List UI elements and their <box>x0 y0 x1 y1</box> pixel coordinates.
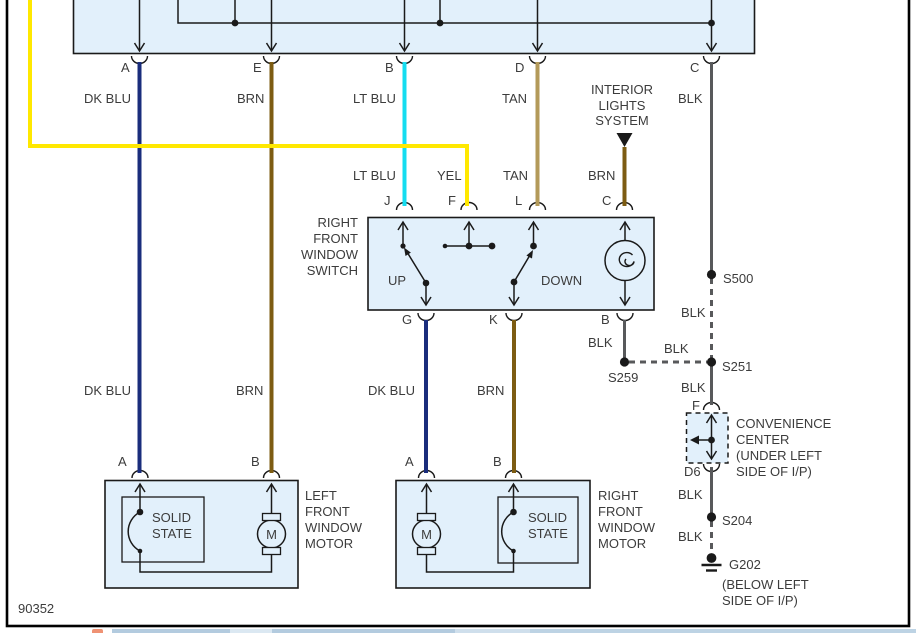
top-pin-d: D <box>515 61 524 74</box>
switch-down-label: DOWN <box>541 274 582 287</box>
wire-label-lt-blu-2: LT BLU <box>353 169 396 182</box>
wire-label-tan-2: TAN <box>503 169 528 182</box>
right-motor-label: RIGHT FRONT WINDOW MOTOR <box>598 488 655 552</box>
wire-label-dk-blu-1: DK BLU <box>84 92 131 105</box>
window-switch-box <box>368 218 654 311</box>
window-switch-line4: SWITCH <box>268 263 358 279</box>
ground-location-line2: SIDE OF I/P) <box>722 593 809 609</box>
wire-label-blk-switch-b: BLK <box>588 336 613 349</box>
left-motor-line4: MOTOR <box>305 536 362 552</box>
switch-pin-f: F <box>448 194 456 207</box>
right-motor-line4: MOTOR <box>598 536 655 552</box>
switch-pin-g: G <box>402 313 412 326</box>
wire-label-blk-horizontal: BLK <box>664 342 689 355</box>
splice-s500-label: S500 <box>723 272 753 285</box>
left-motor-m-label: M <box>265 528 278 541</box>
wire-label-brn-2: BRN <box>588 169 615 182</box>
switch-pin-c: C <box>602 194 611 207</box>
taskbar-segment <box>530 629 916 633</box>
top-pin-c: C <box>690 61 699 74</box>
wire-label-brn-4: BRN <box>477 384 504 397</box>
interior-lights-triangle-icon <box>617 133 633 147</box>
wiring-diagram-canvas <box>0 0 916 633</box>
right-motor-m-label: M <box>420 528 433 541</box>
convenience-line2: CENTER <box>736 432 831 448</box>
right-solid-state-label: SOLID STATE <box>528 510 568 542</box>
ground-location-label: (BELOW LEFT SIDE OF I/P) <box>722 577 809 609</box>
left-solid-state-label: SOLID STATE <box>152 510 192 542</box>
left-motor-line3: WINDOW <box>305 520 362 536</box>
convenience-line3: (UNDER LEFT <box>736 448 831 464</box>
top-connector-box <box>74 0 755 54</box>
right-solid-state-line1: SOLID <box>528 510 568 526</box>
wire-label-lt-blu-1: LT BLU <box>353 92 396 105</box>
wire-label-blk-d6-s204: BLK <box>678 488 703 501</box>
figure-number: 90352 <box>18 602 54 615</box>
wire-label-blk-s500-s251: BLK <box>681 306 706 319</box>
interior-lights-line2: LIGHTS <box>575 98 669 114</box>
taskbar-app-icon[interactable] <box>92 629 103 633</box>
wire-label-blk-s251-f: BLK <box>681 381 706 394</box>
taskbar-segment <box>112 629 230 633</box>
top-pin-b: B <box>385 61 394 74</box>
wire-label-dk-blu-2: DK BLU <box>84 384 131 397</box>
right-motor-line3: WINDOW <box>598 520 655 536</box>
top-box-connector-icons <box>132 56 720 64</box>
splice-s204-dot <box>707 512 716 521</box>
switch-pin-l: L <box>515 194 522 207</box>
right-motor-pin-a: A <box>405 455 414 468</box>
left-motor-top-cap <box>263 514 281 521</box>
top-pin-a: A <box>121 61 130 74</box>
right-motor-line1: RIGHT <box>598 488 655 504</box>
taskbar-strip <box>0 629 916 633</box>
convenience-line1: CONVENIENCE <box>736 416 831 432</box>
convenience-center-label: CONVENIENCE CENTER (UNDER LEFT SIDE OF I… <box>736 416 831 480</box>
splice-s500-dot <box>707 270 716 279</box>
wire-label-dk-blu-3: DK BLU <box>368 384 415 397</box>
wire-label-tan-1: TAN <box>502 92 527 105</box>
right-solid-state-line2: STATE <box>528 526 568 542</box>
left-motor-pin-a: A <box>118 455 127 468</box>
splice-s204-label: S204 <box>722 514 752 527</box>
window-switch-line2: FRONT <box>268 231 358 247</box>
right-motor-pin-b: B <box>493 455 502 468</box>
left-motor-line2: FRONT <box>305 504 362 520</box>
ground-location-line1: (BELOW LEFT <box>722 577 809 593</box>
left-solid-state-line2: STATE <box>152 526 192 542</box>
interior-lights-line3: SYSTEM <box>575 113 669 129</box>
splice-s251-label: S251 <box>722 360 752 373</box>
splice-s259-dot <box>620 357 629 366</box>
wire-label-blk-1: BLK <box>678 92 703 105</box>
interior-lights-system-label: INTERIOR LIGHTS SYSTEM <box>575 82 669 129</box>
splice-s251-dot <box>707 357 716 366</box>
taskbar-segment <box>272 629 455 633</box>
right-motor-top-cap <box>418 514 436 521</box>
left-motor-line1: LEFT <box>305 488 362 504</box>
window-switch-line1: RIGHT <box>268 215 358 231</box>
left-motor-pin-b: B <box>251 455 260 468</box>
wire-label-brn-1: BRN <box>237 92 264 105</box>
wire-label-brn-3: BRN <box>236 384 263 397</box>
convenience-line4: SIDE OF I/P) <box>736 464 831 480</box>
switch-pin-b: B <box>601 313 610 326</box>
ground-g202-label: G202 <box>729 558 761 571</box>
switch-pin-k: K <box>489 313 498 326</box>
taskbar-segment <box>455 629 530 633</box>
wire-label-blk-s204-gnd: BLK <box>678 530 703 543</box>
motor-connector-icons <box>132 471 522 478</box>
wire-label-yel: YEL <box>437 169 462 182</box>
convenience-pin-f: F <box>692 399 700 412</box>
left-solid-state-line1: SOLID <box>152 510 192 526</box>
right-motor-line2: FRONT <box>598 504 655 520</box>
interior-lights-line1: INTERIOR <box>575 82 669 98</box>
convenience-pin-d6: D6 <box>684 465 701 478</box>
left-motor-label: LEFT FRONT WINDOW MOTOR <box>305 488 362 552</box>
splice-s259-label: S259 <box>608 371 638 384</box>
ground-symbol-icon <box>702 554 722 571</box>
left-motor-bottom-cap <box>263 548 281 555</box>
top-pin-e: E <box>253 61 262 74</box>
switch-pin-j: J <box>384 194 391 207</box>
window-switch-line3: WINDOW <box>268 247 358 263</box>
window-switch-label: RIGHT FRONT WINDOW SWITCH <box>268 215 358 279</box>
switch-up-label: UP <box>388 274 406 287</box>
wiring-diagram-page: A E B D C DK BLU BRN LT BLU TAN BLK INTE… <box>0 0 916 633</box>
right-motor-bottom-cap <box>418 548 436 555</box>
taskbar-segment <box>230 629 272 633</box>
